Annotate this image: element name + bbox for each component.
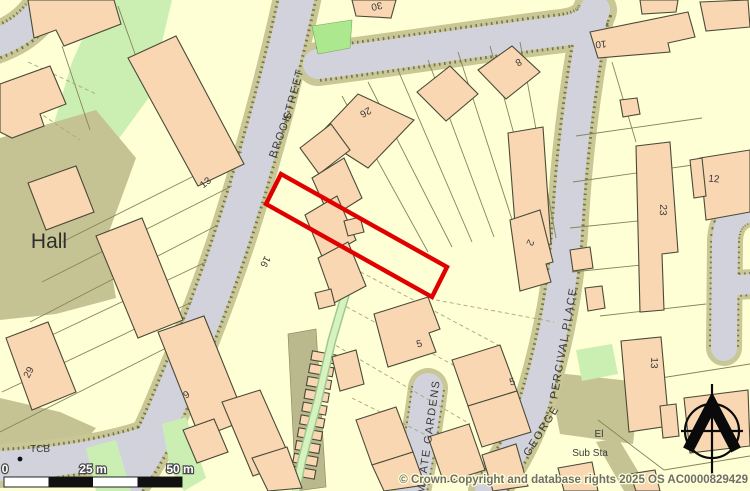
building (620, 98, 640, 117)
scale-end: 50 m (166, 462, 193, 476)
building (585, 286, 605, 311)
ordnance-survey-map: Hall BROOK STREET GEORGE PERCIVAL PLACE … (0, 0, 750, 491)
scale-bar-segment (49, 477, 94, 487)
house-number: 12 (708, 174, 720, 186)
house-number: 13 (648, 357, 659, 369)
scale-bar-segment (138, 477, 183, 487)
green-area (312, 20, 352, 54)
scale-mid: 25 m (79, 462, 106, 476)
scale-zero: 0 (2, 462, 9, 476)
building (660, 404, 679, 438)
label-hall: Hall (31, 230, 67, 253)
building (570, 247, 593, 271)
map-canvas[interactable]: Hall BROOK STREET GEORGE PERCIVAL PLACE … (0, 0, 750, 491)
label-sub-sta: Sub Sta (572, 448, 608, 459)
building (315, 289, 335, 309)
house-number: 23 (657, 204, 668, 216)
label-tcb: TCB (30, 444, 50, 455)
road-cul-de-sac-branch (724, 284, 750, 286)
label-el: El (595, 429, 604, 440)
building (640, 0, 678, 14)
building (700, 150, 750, 220)
house-number: 10 (594, 37, 607, 49)
copyright-attribution: © Crown Copyright and database rights 20… (399, 474, 748, 486)
building (700, 0, 750, 31)
tcb-marker (18, 457, 23, 462)
